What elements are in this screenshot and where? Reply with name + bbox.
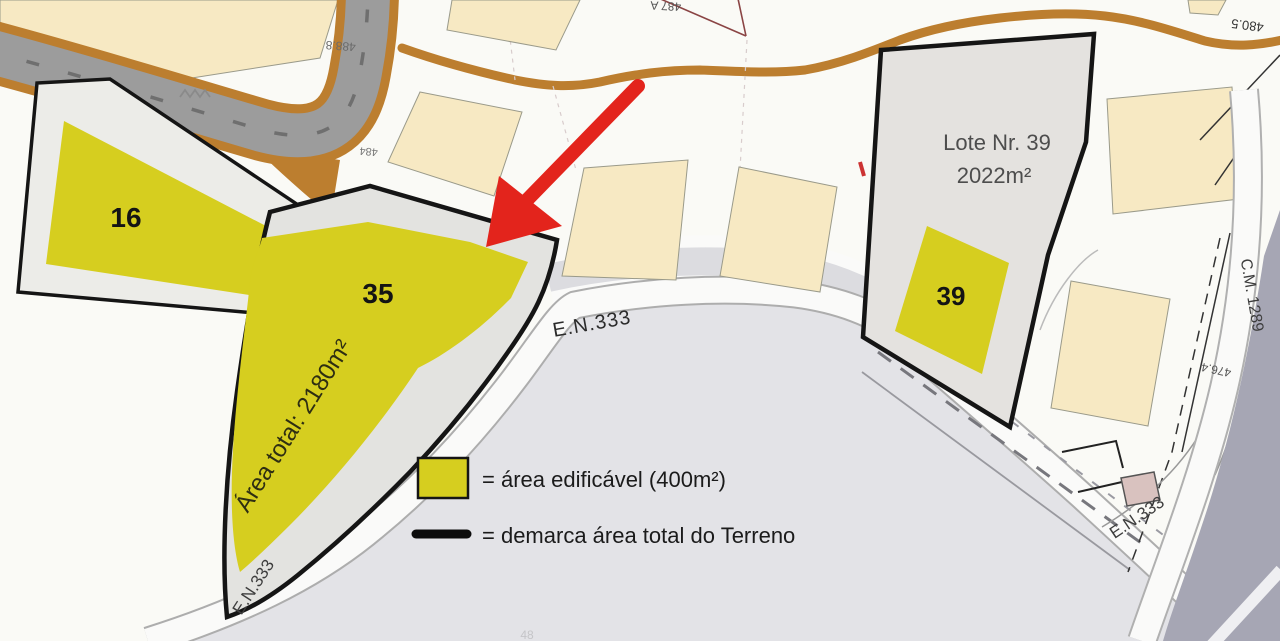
elevation-label: 488.8 xyxy=(325,38,356,54)
elevation-label: 484 xyxy=(359,144,378,158)
beige-lot xyxy=(1051,281,1170,426)
lot-39-label: 39 xyxy=(937,281,966,311)
lot-16-label: 16 xyxy=(110,202,141,233)
legend-buildable-label: = área edificável (400m²) xyxy=(482,467,726,492)
elevation-label: 487 A xyxy=(650,0,681,14)
lot-39-name: Lote Nr. 39 xyxy=(943,130,1051,155)
beige-lot xyxy=(720,167,837,292)
legend-terrain-label: = demarca área total do Terreno xyxy=(482,523,795,548)
site-plan-map: 16 35 Área total: 2180m² Lote Nr. 39 202… xyxy=(0,0,1280,641)
beige-lot xyxy=(1107,87,1239,214)
map-canvas: 16 35 Área total: 2180m² Lote Nr. 39 202… xyxy=(0,0,1280,641)
lot-35-label: 35 xyxy=(362,278,393,309)
elevation-label-faint: 48 xyxy=(520,628,534,641)
lot-39-area: 2022m² xyxy=(957,163,1032,188)
legend-buildable-swatch xyxy=(418,458,468,498)
